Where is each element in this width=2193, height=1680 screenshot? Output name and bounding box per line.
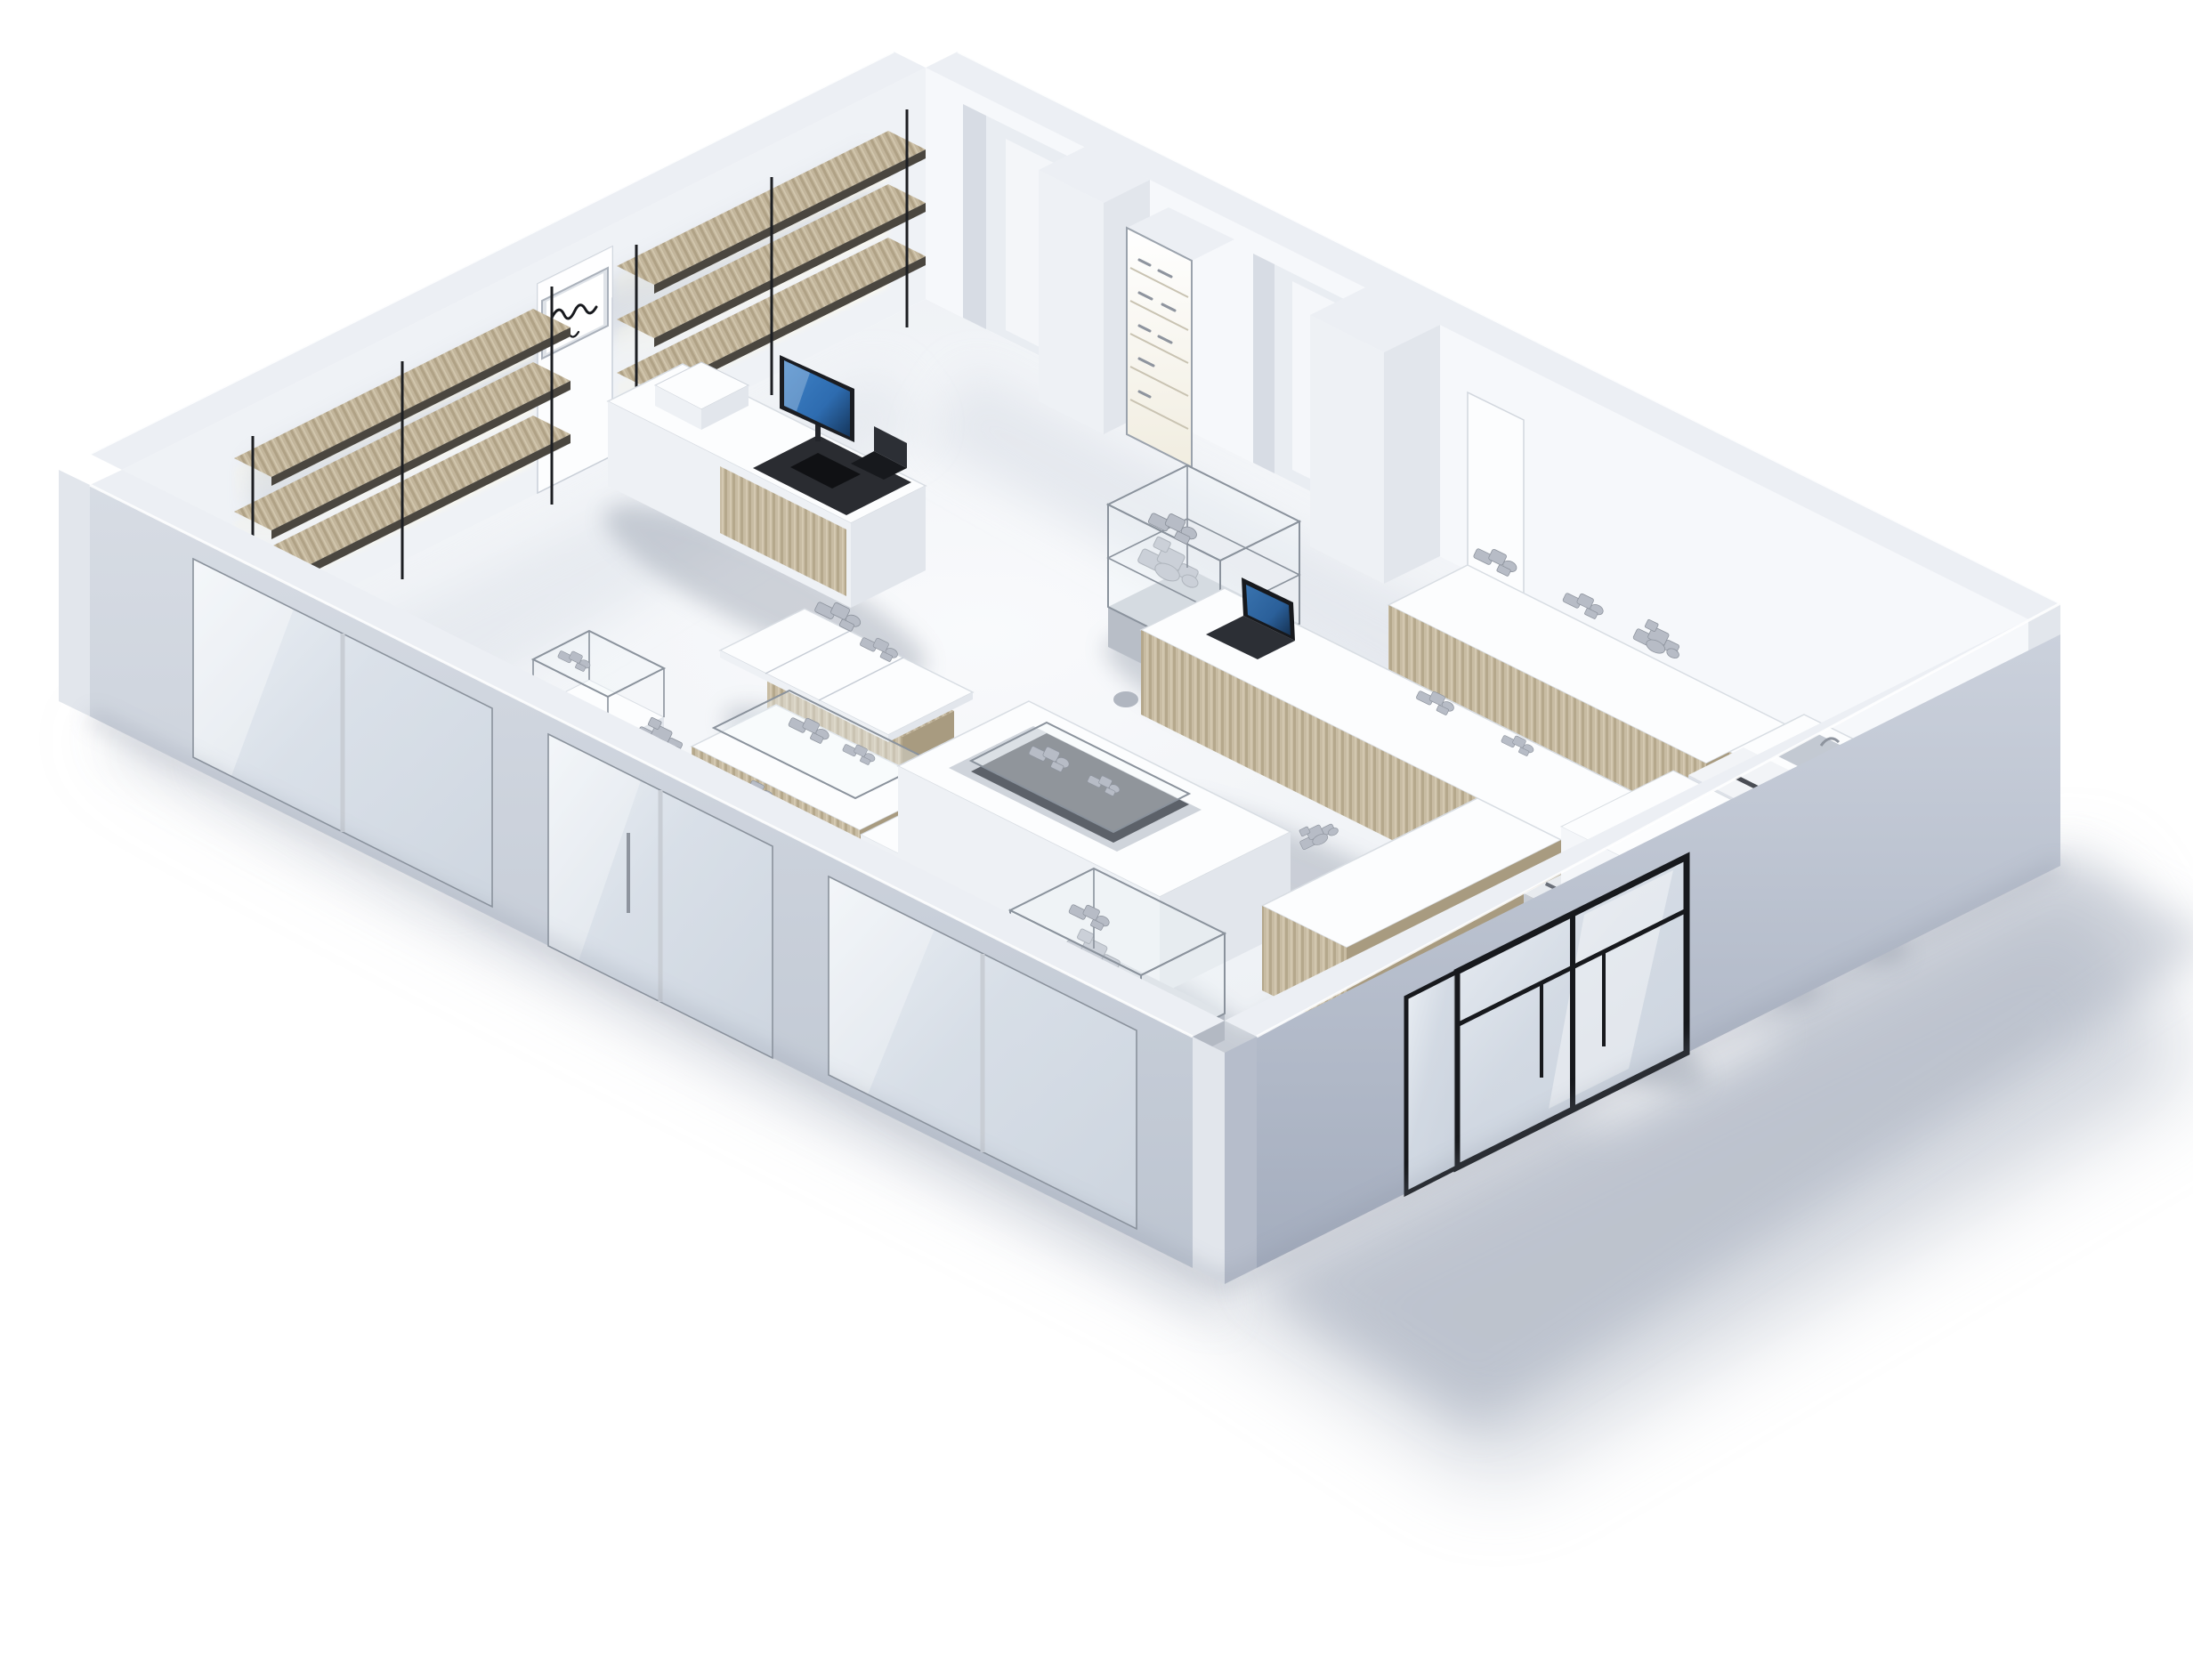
entrance-sidelight [1406, 972, 1457, 1193]
wall-door-panel [538, 246, 612, 493]
left-corner-cap [59, 470, 90, 716]
store-render [36, 14, 2193, 1666]
isometric-store-svg [36, 14, 2193, 1666]
front-corner-cap-left [1193, 1037, 1225, 1284]
wall-pillar-2 [1310, 287, 1440, 584]
front-corner-cap-right [1225, 1037, 1257, 1284]
